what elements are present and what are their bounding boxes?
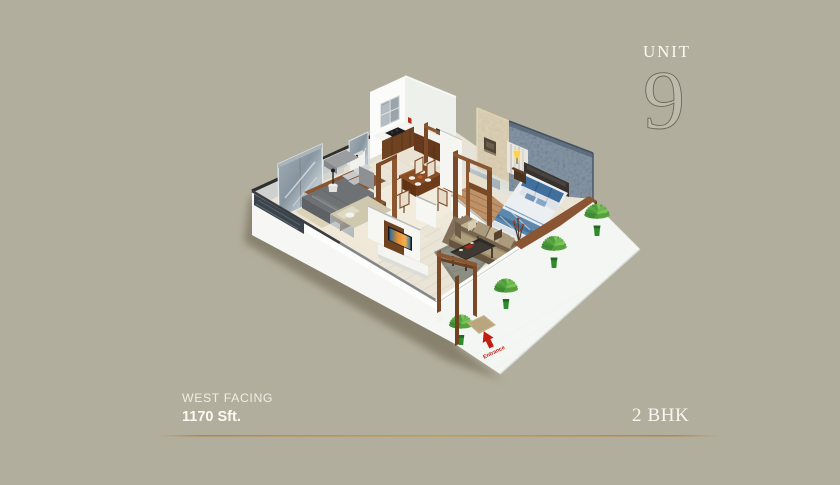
svg-text:9: 9 [643,54,685,147]
svg-text:WEST FACING: WEST FACING [182,391,273,405]
svg-text:2 BHK: 2 BHK [632,405,689,426]
svg-text:1170 Sft.: 1170 Sft. [182,409,241,425]
